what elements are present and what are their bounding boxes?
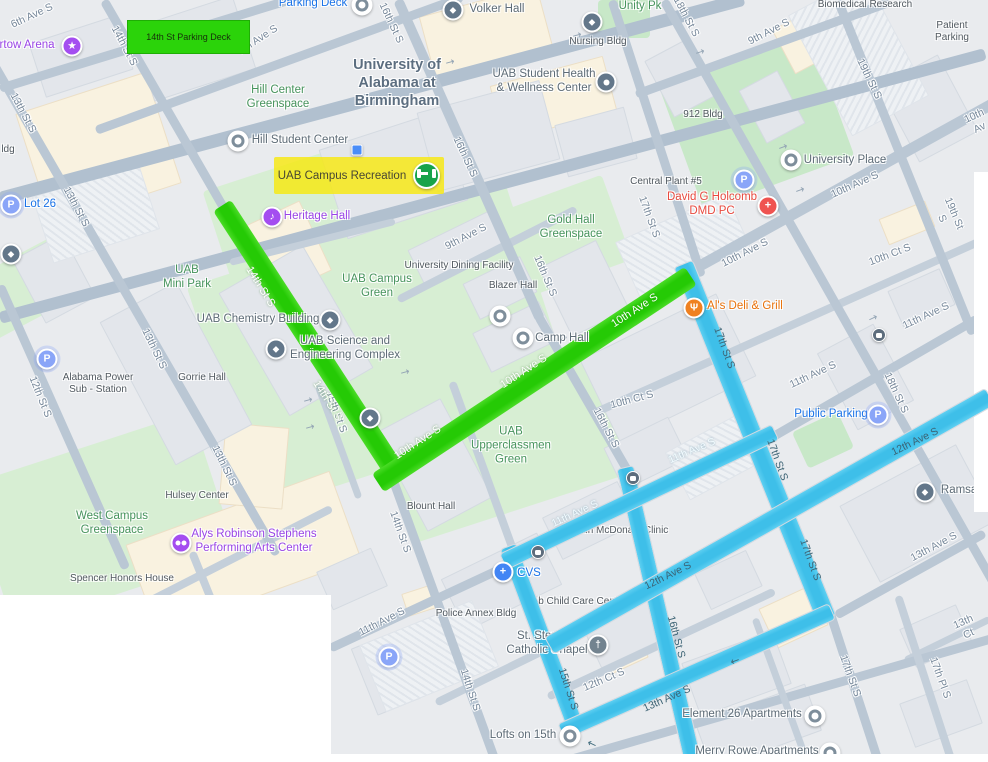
education-icon[interactable]: ◆	[443, 0, 464, 21]
education-icon[interactable]: ◆	[360, 408, 381, 429]
poi-label[interactable]: Element 26 Apartments	[682, 708, 802, 722]
poi-pin-icon[interactable]	[513, 328, 534, 349]
dentist-icon[interactable]: +	[758, 196, 779, 217]
map-label: Unity Pk	[619, 0, 662, 14]
parking-icon[interactable]: P	[734, 170, 755, 191]
map-label: UAB Mini Park	[163, 264, 211, 292]
poi-label[interactable]: Bartow Arena	[0, 39, 55, 53]
map-label: Central Plant #5	[630, 176, 702, 188]
education-icon[interactable]: ◆	[582, 12, 603, 33]
map-label: University of Alabama at Birmingham	[353, 56, 441, 110]
gym-icon[interactable]	[413, 162, 440, 189]
map-label: Gorrie Hall	[178, 372, 226, 384]
parking-icon[interactable]: P	[379, 647, 400, 668]
church-icon[interactable]: †	[588, 635, 609, 656]
stadium-icon[interactable]: ★	[62, 36, 83, 57]
parking-icon[interactable]: P	[37, 349, 58, 370]
poi-pin-icon[interactable]	[781, 150, 802, 171]
poi-label[interactable]: Alys Robinson Stephens Performing Arts C…	[191, 528, 316, 556]
map-label: UAB Upperclassmen Green	[471, 425, 551, 466]
education-icon[interactable]: ◆	[320, 310, 341, 331]
map-label: Blount Hall	[407, 501, 455, 513]
map-label: West Campus Greenspace	[76, 510, 148, 538]
poi-label[interactable]: University Place	[804, 154, 886, 168]
poi-pin-icon[interactable]	[352, 0, 373, 16]
poi-pin-icon[interactable]	[805, 706, 826, 727]
map-label: Hill Center Greenspace	[247, 84, 310, 112]
poi-label[interactable]: Al's Deli & Grill	[707, 300, 783, 314]
poi-label[interactable]: Public Parking	[794, 408, 868, 422]
education-icon[interactable]: ◆	[1, 244, 22, 265]
map-label: Hulsey Center	[165, 490, 228, 502]
bus-stop-icon[interactable]	[626, 471, 640, 485]
poi-pin-icon[interactable]	[560, 726, 581, 747]
pharmacy-icon[interactable]: +	[493, 562, 514, 583]
parking-deck-annotation: 14th St Parking Deck	[127, 20, 250, 54]
education-icon[interactable]: ◆	[266, 339, 287, 360]
map-label: Police Annex Bldg	[436, 608, 517, 620]
poi-label[interactable]: UAB Science and Engineering Complex	[290, 335, 400, 363]
education-icon[interactable]: ◆	[915, 482, 936, 503]
poi-label[interactable]: Lofts on 15th	[490, 729, 557, 743]
map-label: Patient Parking	[934, 20, 970, 44]
map-label: ldg	[1, 144, 14, 156]
poi-label[interactable]: Volker Hall	[470, 3, 525, 17]
poi-label[interactable]: Camp Hall	[535, 332, 589, 346]
poi-label[interactable]: Hill Student Center	[252, 134, 349, 148]
poi-label[interactable]: Parking Deck	[279, 0, 347, 11]
map-label: Gold Hall Greenspace	[540, 214, 603, 242]
map-label: Spencer Honors House	[70, 573, 174, 585]
legend-panel: UAB Campus Recreation Center Paid Lot or…	[0, 595, 331, 762]
map-label: 912 Bldg	[683, 109, 722, 121]
poi-label[interactable]: Heritage Hall	[284, 210, 350, 224]
map-label: UAB Campus Green	[342, 273, 412, 301]
restaurant-icon[interactable]: Ψ	[684, 298, 705, 319]
rec-center-annotation: UAB Campus Recreation	[274, 157, 444, 194]
map-label: Blazer Hall	[489, 280, 537, 292]
one-way-arrow-icon: →	[793, 182, 806, 197]
poi-label[interactable]: Lot 26	[24, 198, 56, 212]
bus-stop-icon[interactable]	[872, 328, 886, 342]
map-edge-mask	[330, 754, 988, 762]
music-icon[interactable]: ♪	[262, 207, 283, 228]
poi-label[interactable]: UAB Chemistry Building	[197, 313, 320, 327]
map-canvas[interactable]: 14th St Parking Deck UAB Campus Recreati…	[0, 0, 988, 762]
one-way-arrow-icon: →	[866, 310, 880, 326]
poi-pin-icon[interactable]	[490, 306, 511, 327]
map-label: Biomedical Research	[818, 0, 913, 11]
poi-pin-icon[interactable]	[228, 131, 249, 152]
theater-masks-icon[interactable]	[171, 533, 192, 554]
map-label: 10th Ct S	[867, 241, 912, 268]
hospital-icon[interactable]	[596, 72, 617, 93]
poi-label[interactable]: CVS	[517, 567, 541, 581]
parking-icon[interactable]: P	[1, 195, 22, 216]
parking-icon[interactable]: P	[868, 405, 889, 426]
map-label: Alabama Power Sub - Station	[63, 372, 134, 396]
map-label: University Dining Facility	[405, 260, 514, 272]
map-edge-mask	[974, 172, 988, 512]
parking-deck-annotation-label: 14th St Parking Deck	[146, 32, 231, 42]
map-label: 6th Ave S	[9, 1, 55, 31]
bus-stop-icon[interactable]	[531, 545, 545, 559]
poi-label[interactable]: UAB Student Health & Wellness Center	[493, 68, 596, 96]
rec-center-annotation-label: UAB Campus Recreation	[278, 170, 406, 182]
transit-stop-icon[interactable]	[352, 145, 363, 156]
poi-label[interactable]: David G Holcomb DMD PC	[667, 191, 757, 219]
